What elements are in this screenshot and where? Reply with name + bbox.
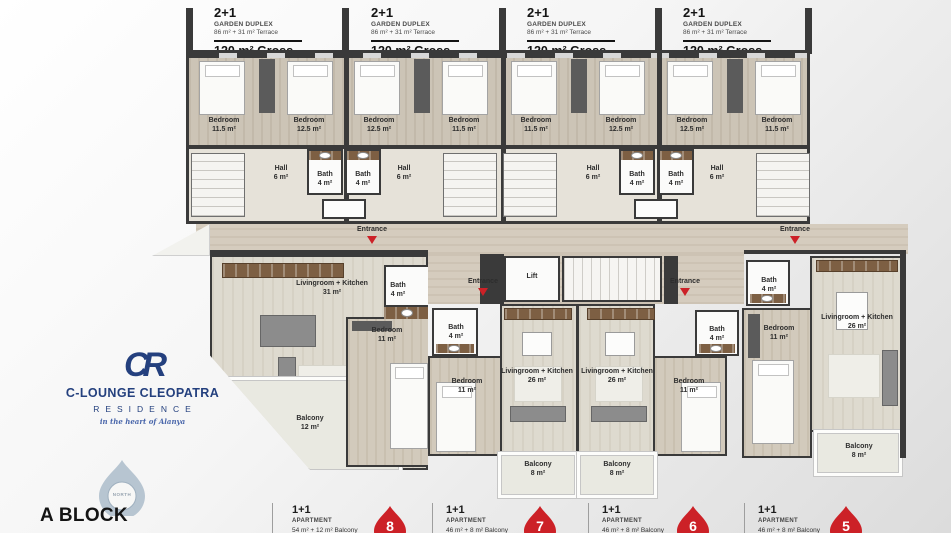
- wall: [189, 145, 807, 149]
- unit-number-badge: 8: [372, 505, 408, 533]
- bed: [667, 61, 713, 115]
- bedroom-label: Bedroom11.5 m²: [434, 117, 494, 135]
- dining-table: [260, 315, 316, 347]
- unit-detail: 46 m² + 8 m² Balcony: [758, 527, 888, 533]
- wall: [744, 250, 906, 254]
- upper-floor-strip: Bedroom11.5 m² Bedroom12.5 m² Bedroom12.…: [186, 50, 810, 224]
- unit-type: 2+1: [371, 6, 471, 19]
- kitchen-counter: [816, 260, 898, 272]
- footer-divider: [588, 503, 589, 533]
- sink: [357, 152, 369, 159]
- sink: [761, 295, 773, 302]
- wall: [342, 8, 349, 54]
- sink: [319, 152, 331, 159]
- unit-type: 2+1: [527, 6, 627, 19]
- wardrobe: [571, 59, 587, 113]
- bedroom-label: Bedroom12.5 m²: [591, 117, 651, 135]
- sink: [448, 345, 460, 352]
- brand-residence: RESIDENCE: [55, 405, 230, 414]
- bath-label: Bath4 m²: [426, 324, 486, 342]
- bed: [442, 61, 488, 115]
- sink: [401, 309, 413, 317]
- wardrobe: [259, 59, 275, 113]
- brand-block: CR C-LOUNGE CLEOPATRA RESIDENCE in the h…: [55, 348, 230, 426]
- wall: [805, 8, 812, 54]
- dining-table: [522, 332, 552, 356]
- bath-label: Bath4 m²: [687, 326, 747, 344]
- bath-label: Bath4 m²: [739, 277, 799, 295]
- unit-type: 2+1: [683, 6, 783, 19]
- kitchen-counter: [587, 308, 655, 320]
- brand-name: C-LOUNGE CLEOPATRA: [55, 387, 230, 401]
- brand-monogram: CR: [55, 348, 230, 382]
- unit-category: APARTMENT: [758, 518, 888, 525]
- sofa: [882, 350, 898, 406]
- unit-area: 86 m² + 31 m² Terrace: [683, 29, 783, 37]
- bath-label: Bath4 m²: [333, 171, 393, 189]
- dining-table: [605, 332, 635, 356]
- bed: [752, 360, 794, 444]
- bed: [390, 363, 428, 449]
- divider-line: [527, 40, 615, 42]
- rug: [828, 354, 880, 398]
- bedroom-label: Bedroom11.5 m²: [194, 117, 254, 135]
- wall: [657, 53, 662, 221]
- kitchen-counter: [504, 308, 572, 320]
- unit-category: APARTMENT: [602, 518, 732, 525]
- stairs: [443, 153, 497, 217]
- sink: [710, 345, 722, 352]
- footer-divider: [432, 503, 433, 533]
- sink: [670, 152, 682, 159]
- balcony-label: Balcony12 m²: [280, 415, 340, 433]
- unit-type: 1+1: [602, 505, 732, 516]
- bed: [287, 61, 333, 115]
- entrance-marker: Entrance: [453, 278, 513, 296]
- balcony-label: Balcony8 m²: [587, 461, 647, 479]
- entrance-marker: Entrance: [765, 226, 825, 244]
- entrance-marker: Entrance: [342, 226, 402, 244]
- bedroom-label: Bedroom11 m²: [659, 378, 719, 396]
- window-wall: [189, 53, 807, 58]
- unit-category: GARDEN DUPLEX: [371, 21, 471, 29]
- livingroom-label: Livingroom + Kitchen31 m²: [287, 280, 377, 298]
- footer-divider: [272, 503, 273, 533]
- stairs: [562, 256, 662, 302]
- entrance-arrow-icon: [790, 236, 800, 244]
- wall: [344, 53, 349, 221]
- wardrobe: [727, 59, 743, 113]
- floor-plan-page: 2+1 GARDEN DUPLEX 86 m² + 31 m² Terrace …: [0, 0, 951, 533]
- balcony-label: Balcony8 m²: [508, 461, 568, 479]
- bedroom-label: Bedroom12.5 m²: [349, 117, 409, 135]
- livingroom: [810, 256, 902, 432]
- bath-label: Bath4 m²: [646, 171, 706, 189]
- wall: [655, 8, 662, 54]
- unit-category: GARDEN DUPLEX: [214, 21, 314, 29]
- bedroom: [653, 356, 727, 456]
- unit-area: 86 m² + 31 m² Terrace: [371, 29, 471, 37]
- unit-number-badge: 6: [675, 505, 711, 533]
- vanity: [384, 307, 430, 319]
- bed: [511, 61, 557, 115]
- bedroom-label: Bedroom11 m²: [749, 325, 809, 343]
- livingroom-label: Livingroom + Kitchen26 m²: [815, 314, 899, 332]
- unit-number-badge: 5: [828, 505, 864, 533]
- bedroom-label: Bedroom12.5 m²: [279, 117, 339, 135]
- unit-type: 1+1: [758, 505, 888, 516]
- vestibule: [322, 199, 366, 219]
- stairs: [191, 153, 245, 217]
- divider-line: [214, 40, 302, 42]
- unit-category: GARDEN DUPLEX: [683, 21, 783, 29]
- block-title: A BLOCK: [40, 506, 128, 525]
- stairs: [503, 153, 557, 217]
- bedroom: [428, 356, 502, 456]
- bed: [755, 61, 801, 115]
- stairs: [756, 153, 810, 217]
- livingroom-label: Livingroom + Kitchen26 m²: [495, 368, 579, 386]
- bedroom-label: Bedroom12.5 m²: [662, 117, 722, 135]
- divider-line: [371, 40, 459, 42]
- entrance-arrow-icon: [478, 288, 488, 296]
- unit-type: 2+1: [214, 6, 314, 19]
- wall: [210, 250, 428, 254]
- wall: [900, 254, 906, 458]
- footer-item-5: 1+1 APARTMENT 46 m² + 8 m² Balcony: [758, 505, 888, 533]
- sofa: [510, 406, 566, 422]
- vestibule: [634, 199, 678, 219]
- sofa: [591, 406, 647, 422]
- footer-divider: [744, 503, 745, 533]
- bedroom-label: Bedroom11 m²: [357, 327, 417, 345]
- brand-tagline: in the heart of Alanya: [55, 418, 230, 426]
- balcony-label: Balcony8 m²: [829, 443, 889, 461]
- unit-detail: 46 m² + 8 m² Balcony: [602, 527, 732, 533]
- entrance-arrow-icon: [367, 236, 377, 244]
- unit-area: 86 m² + 31 m² Terrace: [527, 29, 627, 37]
- terrace-wedge: [152, 224, 210, 256]
- entrance-marker: Entrance: [655, 278, 715, 296]
- wall: [186, 8, 193, 54]
- bed: [199, 61, 245, 115]
- bed: [599, 61, 645, 115]
- footer-item-6: 1+1 APARTMENT 46 m² + 8 m² Balcony: [602, 505, 732, 533]
- bedroom-label: Bedroom11.5 m²: [747, 117, 807, 135]
- north-label: NORTH: [96, 493, 148, 498]
- bedroom-label: Bedroom11.5 m²: [506, 117, 566, 135]
- unit-area: 86 m² + 31 m² Terrace: [214, 29, 314, 37]
- livingroom-label: Livingroom + Kitchen26 m²: [575, 368, 659, 386]
- bed: [354, 61, 400, 115]
- unit-number-badge: 7: [522, 505, 558, 533]
- sink: [631, 152, 643, 159]
- bedroom-label: Bedroom11 m²: [437, 378, 497, 396]
- unit-category: GARDEN DUPLEX: [527, 21, 627, 29]
- wardrobe: [414, 59, 430, 113]
- wall: [499, 8, 506, 54]
- kitchen-counter: [222, 263, 344, 278]
- divider-line: [683, 40, 771, 42]
- bath-label: Bath4 m²: [368, 282, 428, 300]
- entrance-arrow-icon: [680, 288, 690, 296]
